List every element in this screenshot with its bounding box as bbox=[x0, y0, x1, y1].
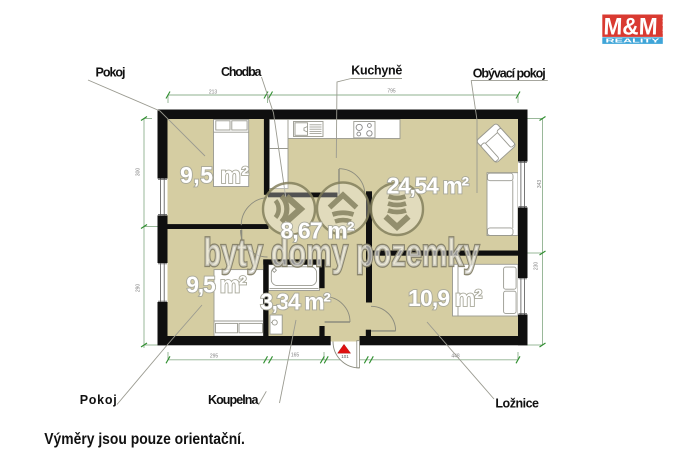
svg-text:HOLDING: HOLDING bbox=[662, 16, 666, 34]
svg-text:343: 343 bbox=[537, 180, 543, 189]
svg-text:9,5 m²: 9,5 m² bbox=[186, 272, 247, 298]
svg-text:Obývací pokoj: Obývací pokoj bbox=[473, 67, 546, 81]
svg-text:Výměry jsou pouze orientační.: Výměry jsou pouze orientační. bbox=[44, 431, 245, 448]
svg-text:M&M: M&M bbox=[603, 14, 658, 41]
svg-text:213: 213 bbox=[209, 90, 218, 96]
svg-text:101: 101 bbox=[341, 354, 349, 359]
svg-text:24,54 m²: 24,54 m² bbox=[387, 172, 470, 198]
svg-text:290: 290 bbox=[136, 284, 142, 293]
svg-text:10,9 m²: 10,9 m² bbox=[408, 285, 483, 311]
svg-text:9,5 m²: 9,5 m² bbox=[180, 162, 249, 188]
svg-text:230: 230 bbox=[534, 262, 540, 271]
svg-text:Koupelna: Koupelna bbox=[208, 393, 259, 407]
svg-text:795: 795 bbox=[387, 89, 396, 95]
svg-text:Kuchyně: Kuchyně bbox=[351, 64, 402, 78]
svg-text:300: 300 bbox=[136, 168, 142, 177]
svg-text:Pokoj: Pokoj bbox=[80, 393, 117, 407]
svg-text:3,34 m²: 3,34 m² bbox=[260, 289, 331, 315]
svg-text:165: 165 bbox=[291, 353, 300, 359]
svg-text:REALITY: REALITY bbox=[606, 39, 661, 45]
svg-text:295: 295 bbox=[210, 354, 219, 360]
svg-text:8,67 m²: 8,67 m² bbox=[281, 218, 355, 244]
svg-text:Ložnice: Ložnice bbox=[495, 397, 539, 411]
svg-text:Chodba: Chodba bbox=[221, 65, 263, 79]
svg-text:Pokoj: Pokoj bbox=[96, 65, 126, 79]
